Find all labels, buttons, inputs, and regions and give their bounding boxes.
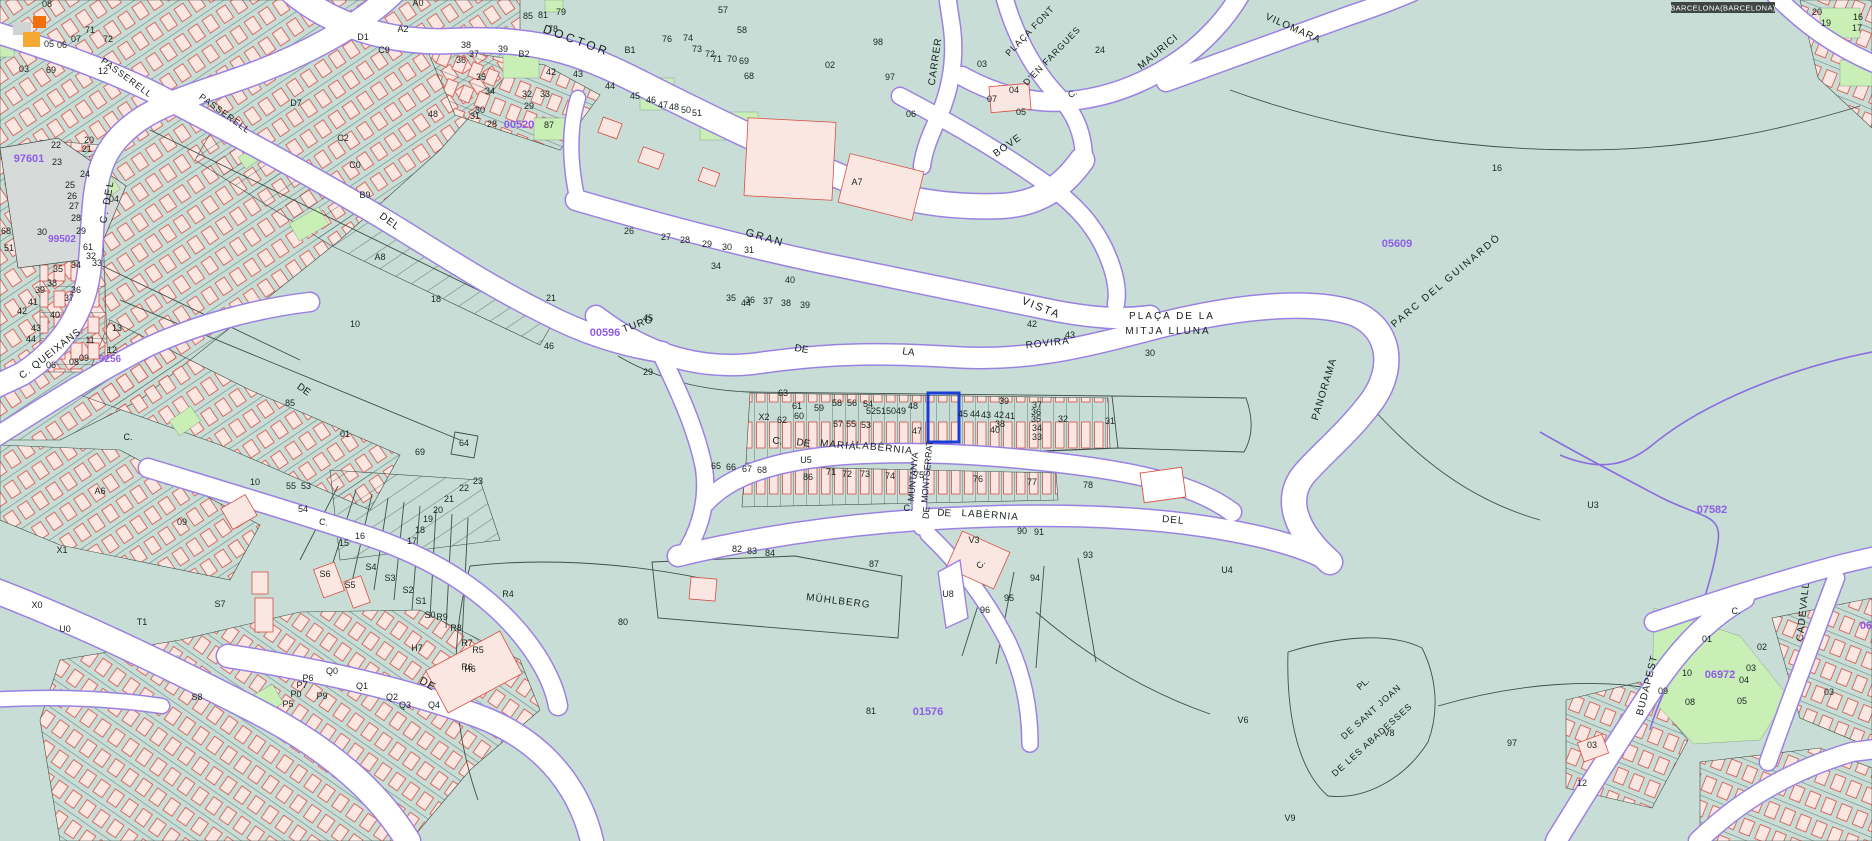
parcel-label: 86 — [803, 472, 813, 482]
parcel-label: 09 — [177, 517, 187, 527]
parcel-label: 44 — [26, 334, 36, 344]
parcel-label: 74 — [683, 33, 693, 43]
parcel-label: 35 — [726, 293, 736, 303]
parcel-label: 50 — [681, 105, 691, 115]
parcel-label: Q2 — [386, 692, 398, 702]
parcel-label: 28 — [487, 119, 497, 129]
parcel-label: 68 — [757, 465, 767, 475]
street-label: DEL — [1162, 514, 1185, 527]
parcel-label: 91 — [1034, 527, 1044, 537]
parcel-label: V9 — [1284, 813, 1295, 823]
street-label: C. — [124, 432, 133, 442]
zone-code-label: 00596 — [590, 327, 621, 339]
parcel-label: 44 — [970, 409, 980, 419]
parcel-label: 08 — [69, 357, 79, 367]
parcel-label: 15 — [339, 538, 349, 548]
parcel-label: V3 — [968, 535, 979, 545]
parcel-label: 94 — [1030, 573, 1040, 583]
parcel-label: A8 — [374, 252, 385, 262]
parcel-label: 40 — [990, 425, 1000, 435]
parcel-label: X1 — [56, 545, 67, 555]
parcel-label: 25 — [65, 180, 75, 190]
parcel-label: 73 — [860, 469, 870, 479]
parcel-label: 71 — [826, 467, 836, 477]
map-svg[interactable]: 0871720705060369122220212324042526272829… — [0, 0, 1872, 841]
parcel-label: 71 — [85, 25, 95, 35]
parcel-label: U4 — [1221, 565, 1233, 575]
parcel-label: 98 — [873, 37, 883, 47]
zone-code-label: 9256 — [99, 354, 122, 365]
zone-code-label: 05609 — [1382, 238, 1413, 250]
parcel-label: 59 — [814, 403, 824, 413]
street-label: C. — [904, 503, 913, 513]
parcel-label: 41 — [28, 297, 38, 307]
parcel-label: 18 — [431, 294, 441, 304]
parcel-label: 20 — [1812, 7, 1822, 17]
parcel-label: 81 — [538, 10, 548, 20]
parcel-label: 04 — [1009, 85, 1019, 95]
parcel-label: 11 — [85, 335, 94, 345]
zone-code-label: 97601 — [14, 153, 45, 165]
parcel-label: 23 — [473, 476, 483, 486]
parcel-label: 29 — [76, 226, 86, 236]
parcel-label: 73 — [692, 44, 702, 54]
parcel-label: 03 — [1746, 663, 1756, 673]
parcel-label: 69 — [739, 56, 749, 66]
parcel-label: 72 — [103, 34, 113, 44]
parcel-label: A6 — [94, 486, 105, 496]
parcel-label: 61 — [792, 401, 802, 411]
parcel-label: R5 — [472, 645, 484, 655]
parcel-label: 69 — [415, 447, 425, 457]
parcel-label: 04 — [1739, 675, 1749, 685]
parcel-label: P9 — [316, 691, 327, 701]
parcel-label: 43 — [981, 410, 991, 420]
parcel-label: 16 — [1492, 163, 1502, 173]
parcel-label: X0 — [31, 600, 42, 610]
parcel-label: 35 — [53, 264, 63, 274]
parcel-label: 47 — [658, 100, 668, 110]
parcel-label: 09 — [1658, 686, 1668, 696]
parcel-label: 39 — [999, 396, 1009, 406]
parcel-label: 17 — [407, 536, 417, 546]
parcel-label: 05 — [1016, 107, 1026, 117]
parcel-label: 97 — [885, 72, 895, 82]
parcel-label: 83 — [747, 546, 757, 556]
zone-code-label: 06 — [1860, 620, 1872, 632]
parcel-label: 32 — [522, 89, 532, 99]
parcel-label: 55 — [846, 419, 856, 429]
parcel-label: 82 — [732, 544, 742, 554]
parcel-label: 41 — [1005, 411, 1015, 421]
parcel-label: 08 — [1685, 697, 1695, 707]
parcel-label: 48 — [669, 102, 679, 112]
parcel-label: A2 — [397, 24, 408, 34]
parcel-label: 40 — [50, 310, 60, 320]
parcel-label: 31 — [744, 245, 754, 255]
parcel-label: 53 — [301, 481, 311, 491]
parcel-label: 19 — [423, 514, 433, 524]
parcel-label: 56 — [847, 398, 857, 408]
parcel-label: C2 — [337, 133, 349, 143]
parcel-label: 78 — [1083, 480, 1093, 490]
parcel-label: 81 — [866, 706, 876, 716]
parcel-label: 54 — [298, 504, 308, 514]
parcel-label: 08 — [42, 0, 52, 9]
parcel-label: 85 — [523, 11, 533, 21]
parcel-label: 28 — [680, 235, 690, 245]
parcel-label: 21 — [546, 293, 556, 303]
parcel-label: P0 — [290, 689, 301, 699]
street-label: DE — [937, 508, 952, 520]
parcel-label: 97 — [1507, 738, 1517, 748]
parcel-label: 48 — [908, 401, 918, 411]
parcel-label: 45 — [958, 409, 968, 419]
parcel-label: 07 — [987, 94, 997, 104]
parcel-label: S6 — [319, 569, 330, 579]
parcel-label: 39 — [35, 285, 45, 295]
parcel-label: 33 — [540, 89, 550, 99]
parcel-label: R8 — [450, 623, 462, 633]
parcel-label: C0 — [349, 160, 361, 170]
parcel-label: 44 — [605, 81, 615, 91]
parcel-label: P5 — [282, 699, 293, 709]
parcel-label: 03 — [1824, 687, 1834, 697]
parcel-label: B2 — [518, 49, 529, 59]
parcel-label: 51 — [4, 243, 14, 253]
parcel-label: 43 — [573, 69, 583, 79]
parcel-label: 43 — [31, 323, 41, 333]
cadastral-map-canvas[interactable]: 0871720705060369122220212324042526272829… — [0, 0, 1872, 841]
parcel-label: 85 — [285, 398, 295, 408]
street-label: LA — [902, 346, 916, 359]
parcel-label: 96 — [980, 605, 990, 615]
parcel-label: S7 — [214, 599, 225, 609]
parcel-label: 39 — [800, 300, 810, 310]
parcel-label: 39 — [498, 44, 508, 54]
marker-orange-icon[interactable] — [33, 16, 46, 28]
parcel-label: 72 — [842, 469, 852, 479]
parcel-label: 10 — [250, 477, 260, 487]
parcel-label: 40 — [785, 275, 795, 285]
street-label: C. — [772, 435, 783, 447]
parcel-label: 51 — [876, 406, 886, 416]
parcel-label: 46 — [544, 341, 554, 351]
parcel-label: 12 — [1577, 778, 1587, 788]
parcel-label: S0 — [424, 610, 435, 620]
parcel-label: 35 — [476, 72, 486, 82]
parcel-label: 05 — [44, 39, 54, 49]
parcel-label: 42 — [1027, 319, 1037, 329]
parcel-label: 36 — [456, 55, 466, 65]
parcel-label: 37 — [64, 293, 74, 303]
parcel-label: C9 — [378, 45, 390, 55]
parcel-label: 76 — [662, 34, 672, 44]
parcel-label: 34 — [71, 260, 81, 270]
parcel-label: 66 — [726, 462, 736, 472]
parcel-label: 21 — [82, 144, 92, 154]
parcel-label: 37 — [763, 296, 773, 306]
parcel-label: 20 — [433, 505, 443, 515]
parcel-label: 09 — [79, 353, 89, 363]
parcel-label: 29 — [524, 101, 534, 111]
parcel-label: Q0 — [326, 666, 338, 676]
parcel-label: 57 — [833, 419, 843, 429]
parcel-label: S4 — [365, 562, 376, 572]
parcel-label: 45 — [630, 91, 640, 101]
parcel-label: 07 — [71, 34, 81, 44]
parcel-label: 71 — [712, 54, 722, 64]
parcel-label: 33 — [92, 258, 102, 268]
parcel-label: 03 — [977, 59, 987, 69]
parcel-label: 03 — [19, 64, 29, 74]
parcel-label: 68 — [744, 71, 754, 81]
parcel-label: 38 — [781, 298, 791, 308]
parcel-label: 65 — [711, 461, 721, 471]
parcel-label: R4 — [502, 589, 514, 599]
parcel-label: 05 — [1737, 696, 1747, 706]
parcel-label: 21 — [444, 494, 454, 504]
zone-code-label: 00520 — [504, 119, 535, 131]
parcel-label: 87 — [544, 120, 554, 130]
parcel-label: 62 — [777, 415, 787, 425]
parcel-label: 84 — [765, 548, 775, 558]
parcel-label: 60 — [794, 411, 804, 421]
parcel-label: 06 — [906, 109, 916, 119]
parcel-label: 34 — [485, 86, 495, 96]
parcel-label: 26 — [624, 226, 634, 236]
zone-code-label: 06972 — [1705, 669, 1736, 681]
parcel-label: 58 — [737, 25, 747, 35]
parcel-label: 44 — [741, 298, 751, 308]
parcel-label: 02 — [1757, 642, 1767, 652]
parcel-label: S5 — [344, 580, 355, 590]
parcel-label: 27 — [69, 201, 79, 211]
road-surface — [571, 98, 578, 202]
parcel-label: U0 — [59, 624, 71, 634]
parcel-label: B1 — [624, 45, 635, 55]
zone-code-label: 99502 — [48, 234, 76, 245]
municipality-badge: BARCELONA(BARCELONA) — [1670, 2, 1776, 13]
zone-code-label: 07582 — [1697, 504, 1728, 516]
parcel-label: 42 — [546, 67, 556, 77]
street-label: C. — [1732, 606, 1741, 616]
parcel-label: 70 — [727, 54, 737, 64]
parcel-label: 67 — [742, 464, 752, 474]
parcel-label: R9 — [436, 612, 448, 622]
parcel-label: 31 — [1105, 416, 1115, 426]
parcel-label: 22 — [459, 483, 469, 493]
parcel-label: 79 — [556, 7, 566, 17]
parcel-label: 02 — [825, 60, 835, 70]
parcel-label: 51 — [692, 108, 702, 118]
parcel-label: S2 — [402, 585, 413, 595]
parcel-label: D1 — [357, 32, 369, 42]
parcel-label: H6 — [464, 664, 476, 674]
parcel-label: 18 — [415, 525, 425, 535]
parcel-label: 29 — [702, 239, 712, 249]
zone-code-label: 01576 — [913, 706, 944, 718]
parcel-label: 76 — [973, 474, 983, 484]
parcel-label: 01 — [340, 429, 350, 439]
street-label: DE — [796, 437, 812, 450]
parcel-label: 33 — [1032, 432, 1042, 442]
parcel-label: 63 — [778, 388, 788, 398]
parcel-label: 28 — [71, 213, 81, 223]
parcel-label: 58 — [832, 398, 842, 408]
road-surface — [0, 698, 162, 706]
parcel-label: S3 — [384, 573, 395, 583]
parcel-label: 01 — [1702, 634, 1712, 644]
parcel-label: 42 — [17, 306, 27, 316]
parcel-label: S1 — [415, 596, 426, 606]
street-label: MITJA LLUNA — [1125, 326, 1210, 337]
parcel-label: 19 — [1821, 18, 1831, 28]
parcel-label: 64 — [459, 438, 469, 448]
parcel-label: 77 — [1027, 477, 1037, 487]
parcel-label: 10 — [350, 319, 360, 329]
parcel-label: 34 — [711, 261, 721, 271]
parcel-label: 52 — [866, 406, 876, 416]
parcel-label: 53 — [861, 420, 871, 430]
parcel-label: B9 — [359, 190, 370, 200]
parcel-label: H7 — [411, 643, 423, 653]
parcel-label: 90 — [1017, 526, 1027, 536]
parcel-label: 80 — [618, 617, 628, 627]
parcel-label: A7 — [851, 177, 862, 187]
street-label: PLAÇA DE LA — [1129, 311, 1215, 322]
parcel-label: 38 — [47, 278, 57, 288]
parcel-label: 30 — [37, 227, 47, 237]
parcel-label: V6 — [1237, 715, 1248, 725]
parcel-label: 74 — [885, 471, 895, 481]
parcel-label: 49 — [896, 406, 906, 416]
parcel-label: 06 — [57, 40, 67, 50]
parcel-label: 30 — [1145, 348, 1155, 358]
parcel-label: 31 — [470, 111, 480, 121]
parcel-label: 03 — [1587, 740, 1597, 750]
parcel-label: 24 — [1095, 45, 1105, 55]
parcel-label: 29 — [643, 367, 653, 377]
parcel-label: U3 — [1587, 500, 1599, 510]
parcel-label: 16 — [1853, 12, 1863, 22]
parcel-label: 27 — [661, 232, 671, 242]
parcel-label: R7 — [461, 638, 473, 648]
parcel-label: 22 — [51, 140, 61, 150]
parcel-label: 95 — [1004, 593, 1014, 603]
parcel-label: T1 — [137, 617, 148, 627]
parcel-label: 13 — [112, 323, 122, 333]
parcel-label: X2 — [758, 412, 769, 422]
street-label: C. — [318, 516, 329, 527]
parcel-label: 50 — [886, 406, 896, 416]
parcel-label: 37 — [469, 49, 479, 59]
parcel-label: 26 — [67, 191, 77, 201]
parcel-label: 46 — [646, 95, 656, 105]
parcel-label: Q4 — [428, 700, 440, 710]
parcel-label: A0 — [412, 0, 423, 8]
parcel-label: 87 — [869, 559, 879, 569]
parcel-label: Q3 — [399, 700, 411, 710]
parcel-label: 24 — [80, 169, 90, 179]
street-label: DE — [920, 506, 931, 519]
parcel-label: 47 — [912, 426, 922, 436]
municipality-badge-text: BARCELONA(BARCELONA) — [1670, 4, 1776, 13]
marker-amber-icon[interactable] — [23, 32, 40, 47]
parcel-label: 93 — [1083, 550, 1093, 560]
parcel-label: S8 — [191, 692, 202, 702]
parcel-label: 17 — [1852, 23, 1862, 33]
parcel-label: 32 — [1058, 414, 1068, 424]
parcel-label: 57 — [718, 5, 728, 15]
parcel-label: 69 — [46, 65, 56, 75]
parcel-label: 48 — [428, 109, 438, 119]
parcel-label: U5 — [800, 455, 812, 465]
parcel-label: 10 — [1682, 668, 1692, 678]
parcel-label: Q1 — [356, 681, 368, 691]
parcel-label: D7 — [290, 98, 302, 108]
parcel-label: 55 — [286, 481, 296, 491]
parcel-label: 30 — [722, 242, 732, 252]
parcel-label: 68 — [1, 226, 11, 236]
parcel-label: U8 — [942, 589, 954, 599]
parcel-label: 16 — [355, 531, 365, 541]
parcel-label: 23 — [52, 157, 62, 167]
